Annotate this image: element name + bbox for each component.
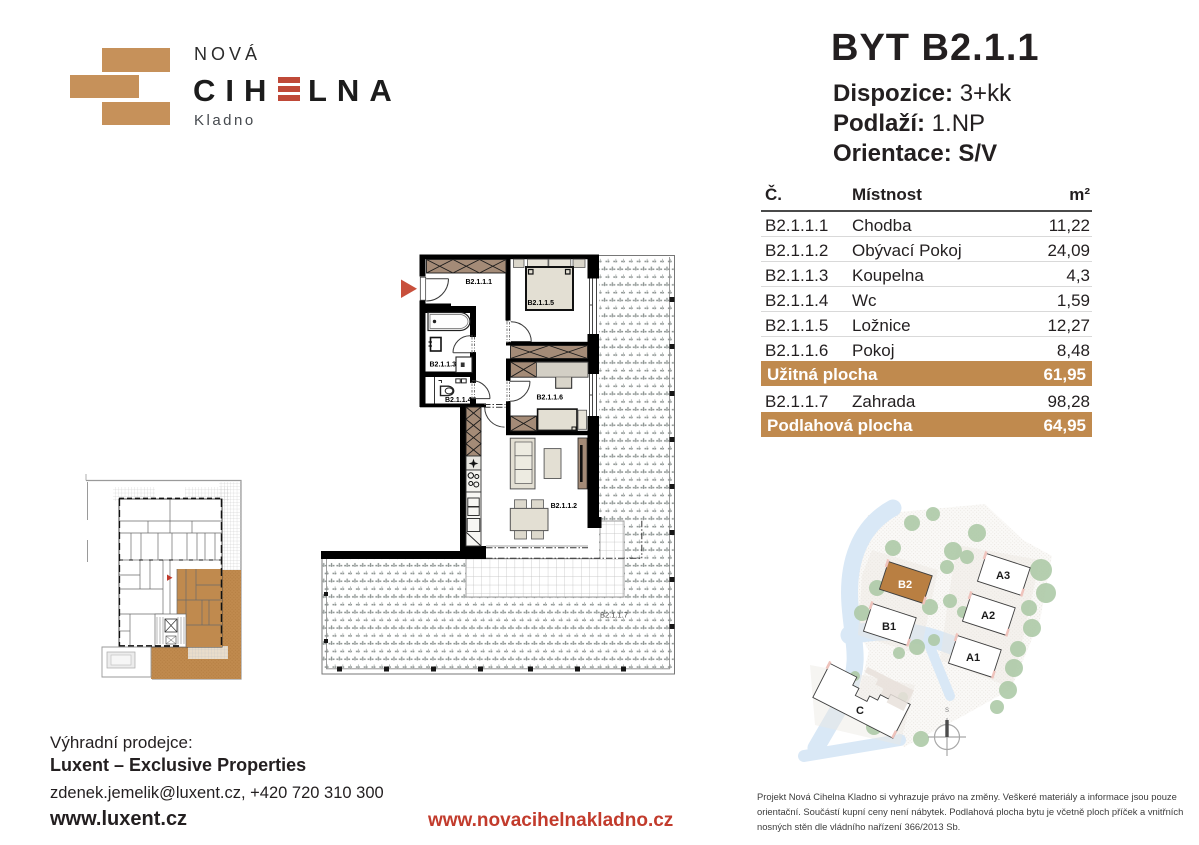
svg-text:B2.1.1.5: B2.1.1.5	[528, 300, 555, 307]
svg-text:B2.1.1.2: B2.1.1.2	[551, 503, 578, 510]
svg-text:A1: A1	[966, 652, 980, 664]
svg-text:A3: A3	[996, 570, 1010, 582]
svg-text:B2.1.1.7: B2.1.1.7	[600, 611, 628, 620]
svg-text:A2: A2	[981, 610, 995, 622]
svg-text:S: S	[945, 708, 949, 714]
svg-text:B2: B2	[898, 579, 912, 591]
svg-text:B1: B1	[882, 621, 896, 633]
svg-text:B2.1.1.4: B2.1.1.4	[445, 397, 472, 404]
svg-text:C: C	[856, 705, 864, 717]
svg-text:B2.1.1.1: B2.1.1.1	[466, 279, 493, 286]
svg-text:B2.1.1.6: B2.1.1.6	[537, 395, 564, 402]
svg-text:B2.1.1.3: B2.1.1.3	[430, 362, 457, 369]
